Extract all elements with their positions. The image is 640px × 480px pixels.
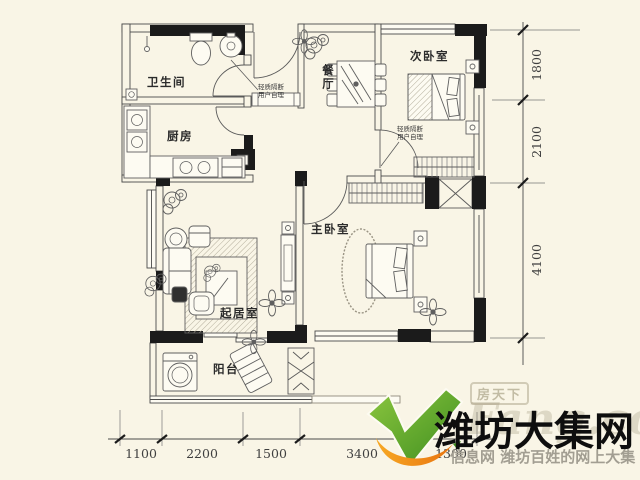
floorplan-page: 卫生间 厨房 餐厅 次卧室 主卧室 起居室 阳台 轻质隔断 用户自理 轻质隔断 … xyxy=(0,0,640,480)
master-bedroom-furniture xyxy=(342,183,427,313)
partition-note-bedroom: 轻质隔断 用户自理 xyxy=(397,126,423,141)
second-bedroom-furniture xyxy=(408,60,479,177)
room-label-bathroom: 卫生间 xyxy=(147,74,186,90)
entry-door xyxy=(254,32,300,78)
dim-bottom-2200: 2200 xyxy=(182,446,222,461)
dim-bottom-1100: 1100 xyxy=(121,446,161,461)
partition-note-line2: 用户自理 xyxy=(258,92,284,100)
kitchen-door xyxy=(216,107,244,135)
dim-bottom-1500: 1500 xyxy=(251,446,291,461)
partition-note-line2: 用户自理 xyxy=(397,134,423,142)
partition-note-entry: 轻质隔断 用户自理 xyxy=(258,84,284,99)
room-label-balcony: 阳台 xyxy=(213,361,239,377)
dim-right-1800: 1800 xyxy=(530,45,544,85)
master-bedroom-door xyxy=(304,181,347,224)
dim-right-2100: 2100 xyxy=(530,122,544,162)
room-label-living-room: 起居室 xyxy=(220,305,259,321)
plant-living-corner xyxy=(163,190,187,215)
dim-right-4100: 4100 xyxy=(530,240,544,280)
plant-living-right xyxy=(259,290,285,316)
room-label-kitchen: 厨房 xyxy=(167,128,193,144)
room-label-master-bedroom: 主卧室 xyxy=(311,221,350,237)
room-label-dining: 餐厅 xyxy=(320,64,336,91)
watermark-title: 潍坊大集网 xyxy=(434,399,634,457)
room-label-second-bedroom: 次卧室 xyxy=(410,48,449,64)
